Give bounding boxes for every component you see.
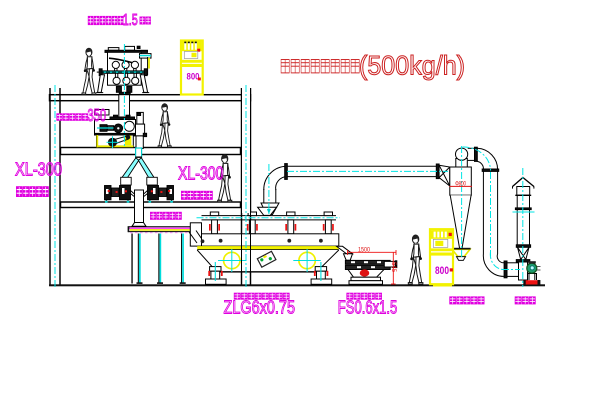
svg-text:Φ800: Φ800 <box>455 180 466 187</box>
svg-text:XL-300: XL-300 <box>178 163 224 183</box>
svg-text:FS0.6x1.5: FS0.6x1.5 <box>338 298 398 318</box>
svg-text:800: 800 <box>435 265 449 277</box>
svg-text:1500: 1500 <box>358 248 371 254</box>
svg-text:XL-300: XL-300 <box>15 160 62 180</box>
svg-text:350: 350 <box>88 105 107 125</box>
svg-text:545: 545 <box>390 262 396 273</box>
svg-text:ZLG6x0.75: ZLG6x0.75 <box>224 298 296 318</box>
svg-text:1.5: 1.5 <box>123 12 138 29</box>
svg-text:800: 800 <box>187 71 200 82</box>
svg-text:(500kg/h): (500kg/h) <box>359 51 465 81</box>
